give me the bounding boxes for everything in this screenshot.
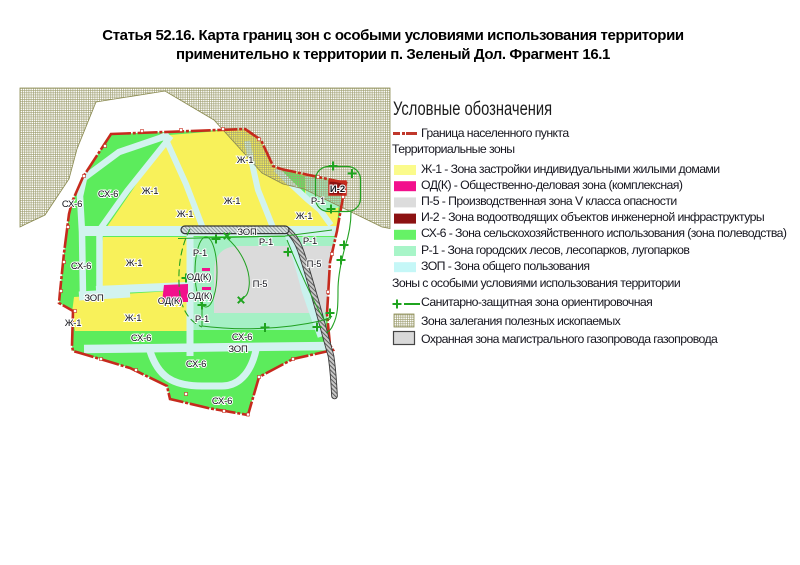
svg-text:Р-1: Р-1 xyxy=(193,248,207,259)
svg-text:И-2: И-2 xyxy=(330,184,345,195)
svg-text:П-5: П-5 xyxy=(307,259,322,270)
svg-text:ОД(К): ОД(К) xyxy=(158,296,183,307)
svg-text:СХ-6: СХ-6 xyxy=(212,396,232,407)
svg-text:Ж-1: Ж-1 xyxy=(65,318,82,329)
svg-text:СХ-6: СХ-6 xyxy=(71,261,91,272)
svg-text:ЗОП: ЗОП xyxy=(228,344,248,355)
svg-text:Ж-1: Ж-1 xyxy=(125,313,142,324)
svg-text:Р-1: Р-1 xyxy=(195,314,209,325)
svg-text:Ж-1: Ж-1 xyxy=(237,155,254,166)
svg-text:СХ-6: СХ-6 xyxy=(131,333,151,344)
svg-text:Ж-1: Ж-1 xyxy=(142,186,159,197)
svg-text:ОД(К): ОД(К) xyxy=(187,272,212,283)
svg-text:Р-1: Р-1 xyxy=(259,237,273,248)
svg-text:ЗОП: ЗОП xyxy=(84,293,104,304)
svg-text:Ж-1: Ж-1 xyxy=(177,209,194,220)
svg-text:ОД(К): ОД(К) xyxy=(188,291,213,302)
svg-text:Ж-1: Ж-1 xyxy=(296,211,313,222)
svg-text:СХ-6: СХ-6 xyxy=(232,332,252,343)
svg-text:Р-1: Р-1 xyxy=(311,196,325,207)
svg-text:П-5: П-5 xyxy=(253,279,268,290)
svg-text:Ж-1: Ж-1 xyxy=(224,196,241,207)
svg-text:СХ-6: СХ-6 xyxy=(186,359,206,370)
svg-text:Р-1: Р-1 xyxy=(303,236,317,247)
svg-text:СХ-6: СХ-6 xyxy=(62,199,82,210)
svg-text:СХ-6: СХ-6 xyxy=(98,189,118,200)
svg-text:Ж-1: Ж-1 xyxy=(126,258,143,269)
svg-text:ЗОП: ЗОП xyxy=(237,227,257,238)
